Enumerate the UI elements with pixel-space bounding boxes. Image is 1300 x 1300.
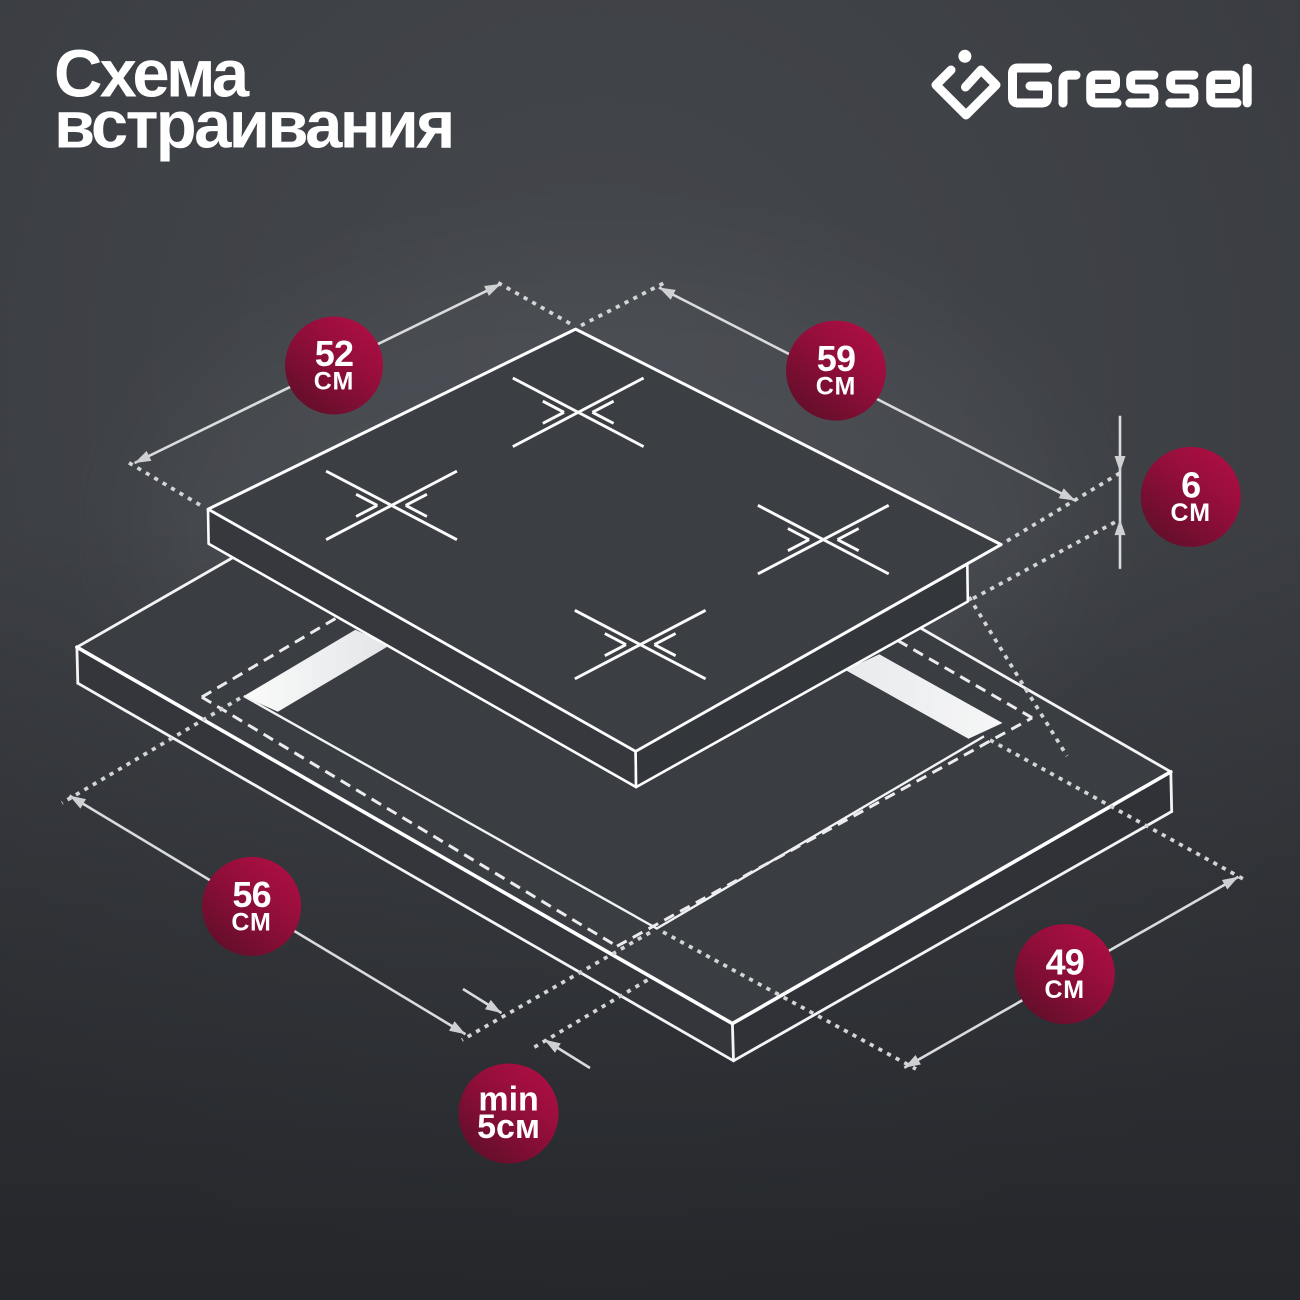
svg-text:СМ: СМ bbox=[1171, 499, 1212, 527]
svg-text:встраивания: встраивания bbox=[54, 88, 453, 163]
svg-text:СМ: СМ bbox=[314, 368, 355, 396]
svg-text:5см: 5см bbox=[477, 1108, 540, 1146]
svg-text:СМ: СМ bbox=[816, 373, 857, 401]
svg-text:СМ: СМ bbox=[1045, 976, 1086, 1004]
svg-text:СМ: СМ bbox=[231, 908, 272, 936]
